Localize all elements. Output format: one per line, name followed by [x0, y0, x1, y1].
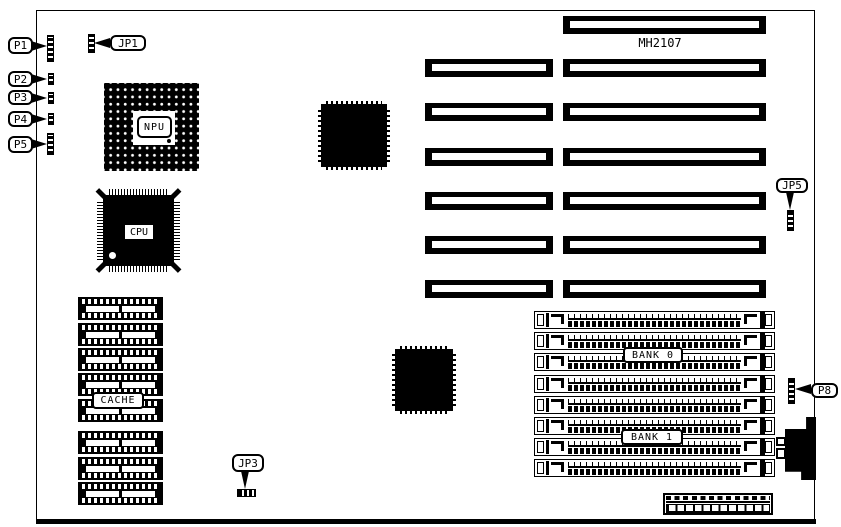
- din-mount-post: [776, 448, 786, 459]
- connector-p2: [48, 73, 54, 85]
- bank0-label: BANK 0: [623, 347, 683, 363]
- callout-p2: P2: [8, 71, 33, 87]
- callout-jp3: JP3: [232, 454, 264, 472]
- simm-socket: [534, 459, 775, 477]
- npu-label: NPU: [137, 116, 172, 138]
- npu-socket: NPU: [104, 83, 199, 171]
- leader-p2: [31, 74, 47, 84]
- leader-p3: [31, 93, 47, 103]
- simm-socket: [534, 396, 775, 414]
- motherboard-diagram: MH2107 NPU CPU CACHE BANK 0 BANK 1: [0, 0, 841, 527]
- cache-chip: [78, 323, 163, 346]
- cache-chip: [78, 348, 163, 371]
- expansion-slot-long: [563, 192, 766, 210]
- leader-jp3: [241, 471, 249, 489]
- expansion-slot-long: [563, 148, 766, 166]
- asic-chip: [318, 101, 390, 170]
- expansion-slot-short: [425, 148, 553, 166]
- leader-p5: [31, 139, 47, 149]
- cache-chip: [78, 431, 163, 454]
- cpu-corner-mark: [96, 188, 111, 203]
- callout-jp1: JP1: [110, 35, 146, 51]
- callout-p8: P8: [811, 383, 838, 398]
- callout-jp5: JP5: [776, 178, 808, 193]
- expansion-slot-short: [425, 59, 553, 77]
- callout-p5: P5: [8, 136, 33, 153]
- connector-p5: [47, 133, 54, 155]
- expansion-slot-long: [563, 59, 766, 77]
- connector-p1: [47, 35, 54, 62]
- leader-p4: [31, 114, 47, 124]
- leader-p8: [795, 384, 811, 394]
- connector-p3: [48, 92, 54, 104]
- power-connector: [663, 493, 773, 515]
- expansion-slot-short: [425, 192, 553, 210]
- expansion-slot-short: [425, 280, 553, 298]
- din-mount-post: [776, 437, 786, 446]
- board-model-label: MH2107: [625, 36, 695, 50]
- simm-socket: [534, 375, 775, 393]
- callout-p3: P3: [8, 90, 33, 105]
- board-bottom-edge: [36, 519, 816, 524]
- connector-p8: [788, 378, 795, 404]
- simm-socket: [534, 311, 775, 329]
- jumper-jp3: [237, 489, 256, 497]
- npu-pin1-dot: [167, 139, 171, 143]
- connector-p4: [48, 113, 54, 125]
- leader-jp5: [786, 192, 794, 210]
- cpu-pin1-dot: [109, 252, 116, 259]
- cpu-corner-mark: [167, 258, 182, 273]
- cache-chip: [78, 457, 163, 480]
- expansion-slot-long: [563, 236, 766, 254]
- leader-jp1: [94, 38, 110, 48]
- cache-label: CACHE: [92, 392, 144, 409]
- cpu-corner-mark: [167, 188, 182, 203]
- callout-p4: P4: [8, 111, 33, 127]
- asic-chip: [392, 346, 456, 414]
- cache-chip: [78, 482, 163, 505]
- expansion-slot-long: [563, 16, 766, 34]
- cpu-corner-mark: [96, 258, 111, 273]
- cache-chip: [78, 297, 163, 320]
- jumper-jp5: [787, 210, 794, 231]
- expansion-slot-long: [563, 103, 766, 121]
- bank1-label: BANK 1: [621, 429, 683, 445]
- leader-p1: [31, 41, 47, 51]
- expansion-slot-short: [425, 236, 553, 254]
- expansion-slot-short: [425, 103, 553, 121]
- callout-p1: P1: [8, 37, 33, 54]
- expansion-slot-long: [563, 280, 766, 298]
- cpu-chip: CPU: [97, 189, 180, 272]
- cpu-label: CPU: [125, 225, 153, 239]
